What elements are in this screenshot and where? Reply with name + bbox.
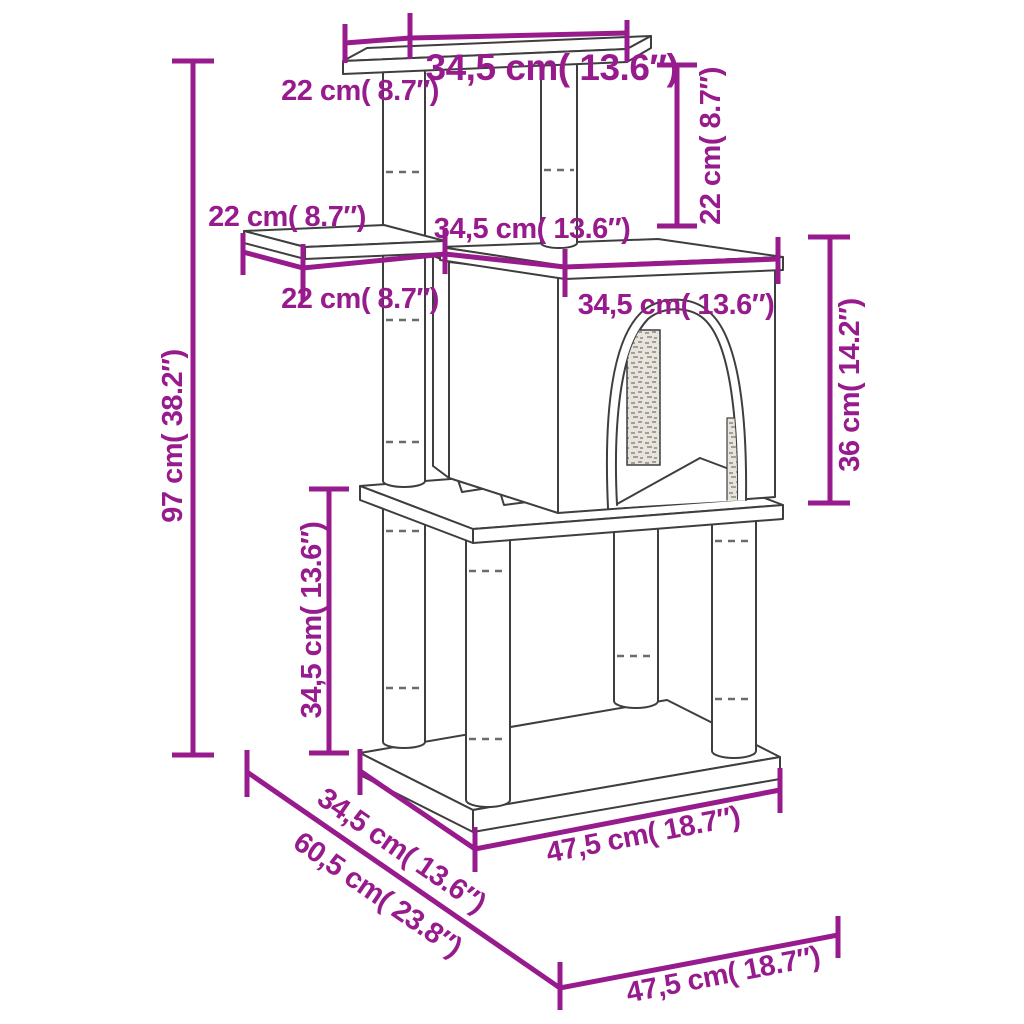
dimension-diagram: 22 cm( 8.7″) 34,5 cm( 13.6″) 22 cm( 8.7″… xyxy=(0,0,1024,1024)
dim-label-side-platform-depth: 22 cm( 8.7″) xyxy=(208,201,366,233)
back-post xyxy=(614,508,658,708)
dim-label-total-height: 97 cm( 38.2″) xyxy=(157,349,189,522)
dim-label-top-platform-depth: 22 cm( 8.7″) xyxy=(281,75,439,107)
dim-label-roof-depth: 34,5 cm( 13.6″) xyxy=(434,213,631,245)
dim-label-upper-post-height: 22 cm( 8.7″) xyxy=(695,67,727,225)
dim-label-roof-width: 34,5 cm( 13.6″) xyxy=(578,289,775,321)
cat-tree-dimension-drawing: 22 cm( 8.7″) 34,5 cm( 13.6″) 22 cm( 8.7″… xyxy=(0,0,1024,1024)
dim-label-lower-section-height: 34,5 cm( 13.6″) xyxy=(296,522,328,719)
house-left-wall xyxy=(449,262,558,513)
interior-sisal-post xyxy=(627,330,660,465)
left-post-lower xyxy=(383,503,425,748)
dim-label-side-platform-width: 22 cm( 8.7″) xyxy=(281,283,439,315)
tall-post-upper xyxy=(383,68,425,487)
dim-label-condo-height: 36 cm( 14.2″) xyxy=(834,298,866,471)
dim-label-top-platform-width: 34,5 cm( 13.6″) xyxy=(426,47,679,88)
dimension-upper-post-height xyxy=(657,65,697,226)
right-post xyxy=(712,512,756,758)
front-post xyxy=(466,525,510,807)
dim-label-footprint-width: 47,5 cm( 18.7″) xyxy=(624,941,823,1010)
